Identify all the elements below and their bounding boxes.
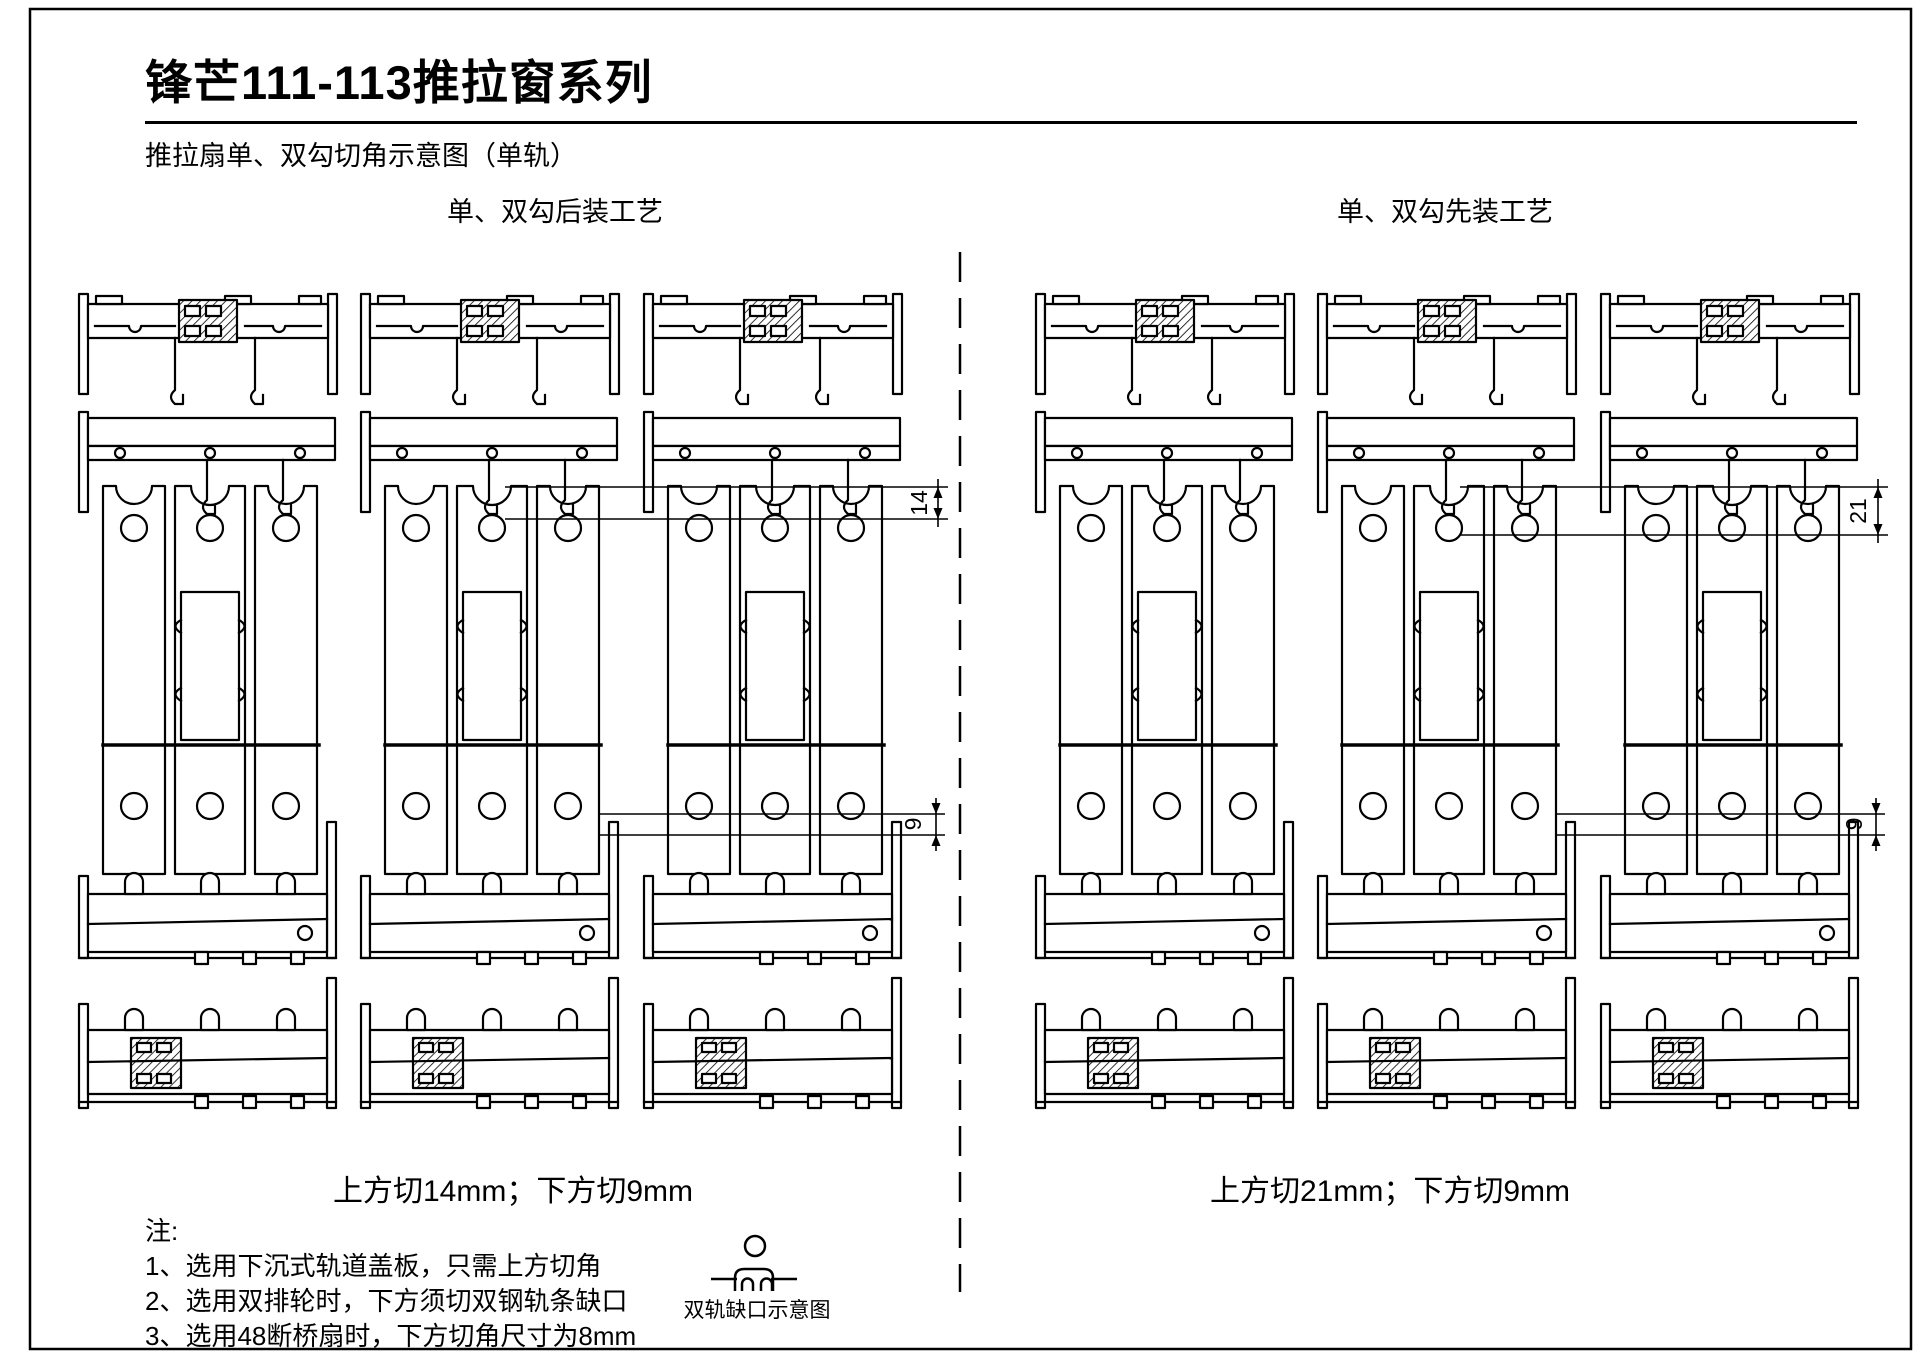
page-title: 锋芒111-113推拉窗系列 xyxy=(145,44,653,113)
caption-left: 上方切14mm；下方切9mm xyxy=(333,1166,693,1210)
note-item: 1、选用下沉式轨道盖板，只需上方切角 xyxy=(145,1249,636,1284)
right-process-drawing xyxy=(1036,294,1859,1108)
left-process-drawing xyxy=(79,294,902,1108)
dim-value-right-top: 21 xyxy=(1845,487,1871,535)
dim-value-left-top: 14 xyxy=(906,479,932,527)
title-underline xyxy=(145,121,1857,124)
section-header-left: 单、双勾后装工艺 xyxy=(447,190,663,229)
notch-legend-label: 双轨缺口示意图 xyxy=(684,1294,831,1324)
notes-label: 注: xyxy=(145,1214,636,1249)
double-rail-notch-icon xyxy=(711,1236,797,1291)
note-item: 3、选用48断桥扇时，下方切角尺寸为8mm xyxy=(145,1319,636,1354)
page-subtitle: 推拉扇单、双勾切角示意图（单轨） xyxy=(145,134,577,173)
dim-value-left-bottom: 9 xyxy=(900,800,926,848)
dim-value-right-bottom: 9 xyxy=(1841,800,1867,848)
note-item: 2、选用双排轮时，下方须切双钢轨条缺口 xyxy=(145,1284,636,1319)
drawing-sheet: 锋芒111-113推拉窗系列 推拉扇单、双勾切角示意图（单轨） 单、双勾后装工艺… xyxy=(0,0,1920,1358)
notes-block: 注: 1、选用下沉式轨道盖板，只需上方切角 2、选用双排轮时，下方须切双钢轨条缺… xyxy=(145,1214,636,1354)
caption-right: 上方切21mm；下方切9mm xyxy=(1210,1166,1570,1210)
technical-drawing-canvas xyxy=(0,0,1920,1358)
section-header-right: 单、双勾先装工艺 xyxy=(1337,190,1553,229)
